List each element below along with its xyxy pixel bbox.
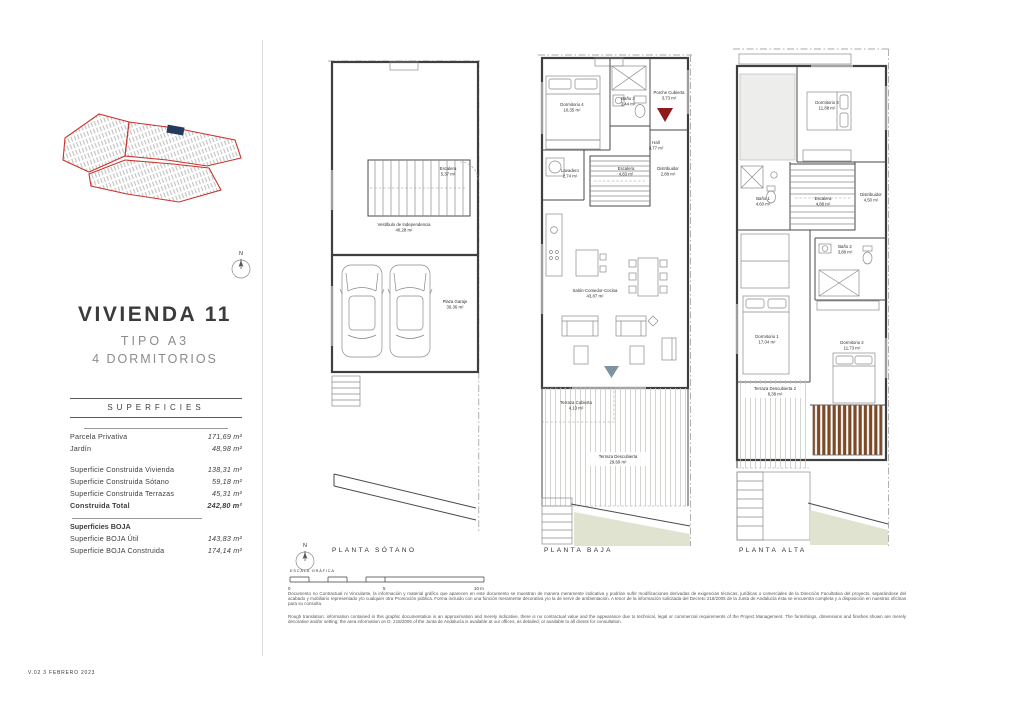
wardrobe-hatch (546, 140, 600, 149)
washer-icon (546, 158, 564, 176)
svg-text:11,88 m²: 11,88 m² (819, 106, 836, 111)
svg-text:4,50 m²: 4,50 m² (864, 198, 879, 203)
svg-text:11,73 m²: 11,73 m² (844, 346, 861, 351)
svg-text:4,83 m²: 4,83 m² (619, 172, 634, 177)
room-label-lavadero: Lavadero (561, 168, 580, 173)
boja-section-header: Superficies BOJA (70, 521, 242, 533)
staircase (590, 156, 650, 206)
table-row-jardin: Jardín 48,98 m² (70, 443, 242, 455)
floorplan-sheet: N VIVIENDA 11 TIPO A3 4 DORMITORIOS SUPE… (0, 0, 1024, 722)
svg-text:4,13 m²: 4,13 m² (569, 406, 584, 411)
svg-text:N: N (303, 543, 307, 549)
svg-text:3,88 m²: 3,88 m² (838, 250, 853, 255)
table-rule (72, 518, 202, 519)
site-location-map (55, 98, 245, 238)
wardrobe-hatch (803, 150, 851, 161)
svg-text:3,73 m²: 3,73 m² (662, 96, 677, 101)
table-rule (84, 428, 228, 429)
plan-baja-drawing: Dormitorio 4 10,35 m² Baño 3 3,44 m² Por… (538, 54, 692, 546)
svg-text:29,69 m²: 29,69 m² (610, 460, 628, 465)
room-label-escalera: Escalera (618, 166, 635, 171)
table-row-parcela: Parcela Privativa 171,69 m² (70, 431, 242, 443)
svg-text:10,35 m²: 10,35 m² (564, 108, 582, 113)
table-row-construida-sotano: Superficie Construida Sótano 59,18 m² (70, 476, 242, 488)
svg-text:2,88 m²: 2,88 m² (661, 172, 676, 177)
pergola-slats (813, 405, 882, 455)
room-label-garaje: Plaza Garaje (443, 299, 468, 304)
graphic-scale-bar: ESCALA GRÁFICA 0 5 10 m (288, 566, 498, 594)
house-type-label: TIPO A3 (55, 334, 255, 348)
bedrooms-label: 4 DORMITORIOS (55, 352, 255, 366)
bathroom-fixtures (612, 66, 646, 118)
legal-disclaimer-en: Rough translation: information contained… (288, 614, 906, 624)
room-label-escalera: Escalera (440, 166, 457, 171)
site-plot-outlines (63, 114, 241, 202)
svg-text:8,38 m²: 8,38 m² (768, 392, 783, 397)
room-label-dormitorio3: Dormitorio 3 (815, 100, 839, 105)
driveway-ramp (334, 474, 476, 520)
room-label-bano3: Baño 3 (621, 96, 635, 101)
north-compass-icon: N (228, 246, 254, 282)
room-label-distribuidor: Distribuidor (860, 192, 882, 197)
vent-hatch (595, 58, 623, 66)
entrance-marker-icon (657, 108, 673, 122)
neighbour-ramp (810, 510, 888, 545)
lower-roof-terrace (737, 472, 810, 540)
exterior-steps (332, 376, 360, 406)
version-note: V.02 3 FEBRERO 2023 (28, 670, 95, 676)
page-title: VIVIENDA 11 (55, 303, 255, 327)
panel-divider (262, 40, 263, 656)
terrace-decking (543, 388, 687, 506)
table-row-construida-total: Construida Total 242,80 m² (70, 500, 242, 512)
neighbour-ramp (574, 512, 690, 546)
roof-edge-strip (739, 54, 851, 64)
room-label-hall: Hall (652, 140, 659, 145)
plan-alta-drawing: Dormitorio 3 11,88 m² Baño 1 4,60 m² Esc… (733, 48, 890, 548)
svg-text:3,44 m²: 3,44 m² (621, 102, 636, 107)
room-label-terraza2: Terraza Descubierta 2 (754, 386, 797, 391)
room-label-bano1: Baño 1 (756, 196, 770, 201)
table-row-construida-terrazas: Superficie Construida Terrazas 45,31 m² (70, 488, 242, 500)
bed-furniture (833, 353, 875, 403)
svg-text:4,88 m²: 4,88 m² (816, 202, 831, 207)
roof-void (740, 74, 795, 160)
car-icon (340, 265, 384, 357)
wardrobe-hatch (741, 234, 789, 288)
svg-text:43,87 m²: 43,87 m² (587, 294, 605, 299)
kitchen-furniture (546, 214, 606, 276)
legal-disclaimer-es: Documento no Contractual ni Vinculante, … (288, 591, 906, 606)
room-label-salon: Salón-Comedor-Cocina (573, 288, 619, 293)
table-row-boja-construida: Superficie BOJA Construida 174,14 m² (70, 545, 242, 557)
surfaces-table: SUPERFICIES Parcela Privativa 171,69 m² … (70, 398, 242, 557)
room-label-escalera: Escalera (815, 196, 832, 201)
sofa-furniture (562, 316, 676, 364)
svg-text:4,60 m²: 4,60 m² (756, 202, 771, 207)
table-row-construida-vivienda: Superficie Construida Vivienda 138,31 m² (70, 464, 242, 476)
plan-caption-sotano: PLANTA SÓTANO (332, 547, 416, 554)
car-icon (388, 265, 432, 357)
room-label-terraza-cubierta: Terraza Cubierta (560, 400, 592, 405)
room-label-dormitorio4: Dormitorio 4 (560, 102, 584, 107)
svg-text:2,74 m²: 2,74 m² (563, 174, 578, 179)
room-label-porche: Porche Cubierta (653, 90, 685, 95)
dining-table-furniture (629, 258, 667, 296)
surfaces-header: SUPERFICIES (70, 398, 242, 418)
room-label-terraza-descubierta: Terraza Descubierta (599, 454, 638, 459)
room-label-dormitorio1: Dormitorio 1 (755, 334, 779, 339)
room-label-bano2: Baño 2 (838, 244, 852, 249)
svg-text:40,28 m²: 40,28 m² (396, 228, 414, 233)
closet-hatch (817, 301, 879, 310)
svg-text:N: N (239, 251, 243, 257)
svg-text:17,04 m²: 17,04 m² (759, 340, 777, 345)
svg-text:3,77 m²: 3,77 m² (649, 146, 664, 151)
plan-caption-alta: PLANTA ALTA (739, 547, 807, 554)
room-label-vestibulo: Vestíbulo de Independencia (377, 222, 431, 227)
plan-caption-baja: PLANTA BAJA (544, 547, 613, 554)
plan-sotano-drawing: Escalera 5,37 m² Vestíbulo de Independen… (328, 60, 480, 532)
table-row-boja-util: Superficie BOJA Útil 143,83 m² (70, 533, 242, 545)
vent-hatch (390, 62, 418, 70)
terrace-access-marker-icon (604, 366, 619, 378)
room-label-distribuidor: Distribuidor (657, 166, 679, 171)
room-label-dormitorio2: Dormitorio 2 (840, 340, 864, 345)
svg-text:30,36 m²: 30,36 m² (447, 305, 465, 310)
svg-text:ESCALA GRÁFICA: ESCALA GRÁFICA (290, 568, 335, 573)
bed-furniture (807, 92, 851, 130)
svg-text:5,37 m²: 5,37 m² (441, 172, 456, 177)
